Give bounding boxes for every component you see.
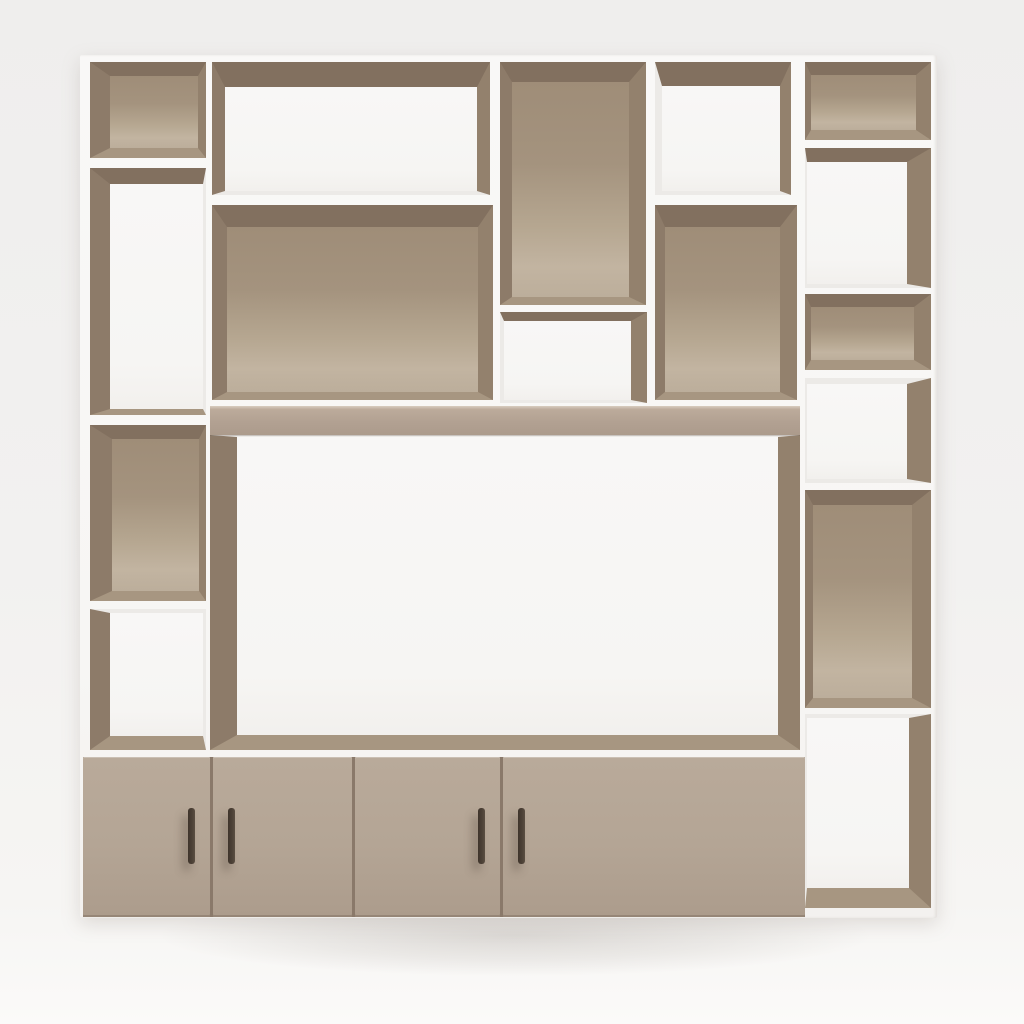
- compartment-midright-main: [655, 205, 797, 400]
- compartment-midleft-main: [212, 205, 493, 400]
- door-handle-3: [478, 808, 485, 864]
- cabinet-door-3: [355, 757, 500, 917]
- compartment-right-3: [805, 294, 931, 370]
- cabinet-door-2: [213, 757, 352, 917]
- compartment-right-5: [805, 490, 931, 708]
- door-handle-1: [188, 808, 195, 864]
- door-handle-4: [518, 808, 525, 864]
- compartment-right-2: [805, 148, 931, 288]
- compartment-right-4: [805, 378, 931, 483]
- compartment-mid-top: [500, 62, 646, 305]
- scene: [0, 0, 1024, 1024]
- compartment-left-2: [90, 168, 206, 415]
- compartment-tv-niche: [210, 435, 800, 750]
- cabinet-door-1: [83, 757, 210, 917]
- tv-shelf-band: [210, 406, 800, 435]
- compartment-left-1: [90, 62, 206, 158]
- compartment-left-4: [90, 609, 206, 750]
- compartment-right-1: [805, 62, 931, 140]
- compartment-mid-small: [500, 312, 647, 403]
- compartment-midright-top: [655, 62, 791, 195]
- compartment-right-6: [805, 714, 931, 908]
- compartment-midleft-top: [212, 62, 490, 195]
- door-handle-2: [228, 808, 235, 864]
- cabinet-door-4: [503, 757, 805, 917]
- compartment-left-3: [90, 425, 206, 601]
